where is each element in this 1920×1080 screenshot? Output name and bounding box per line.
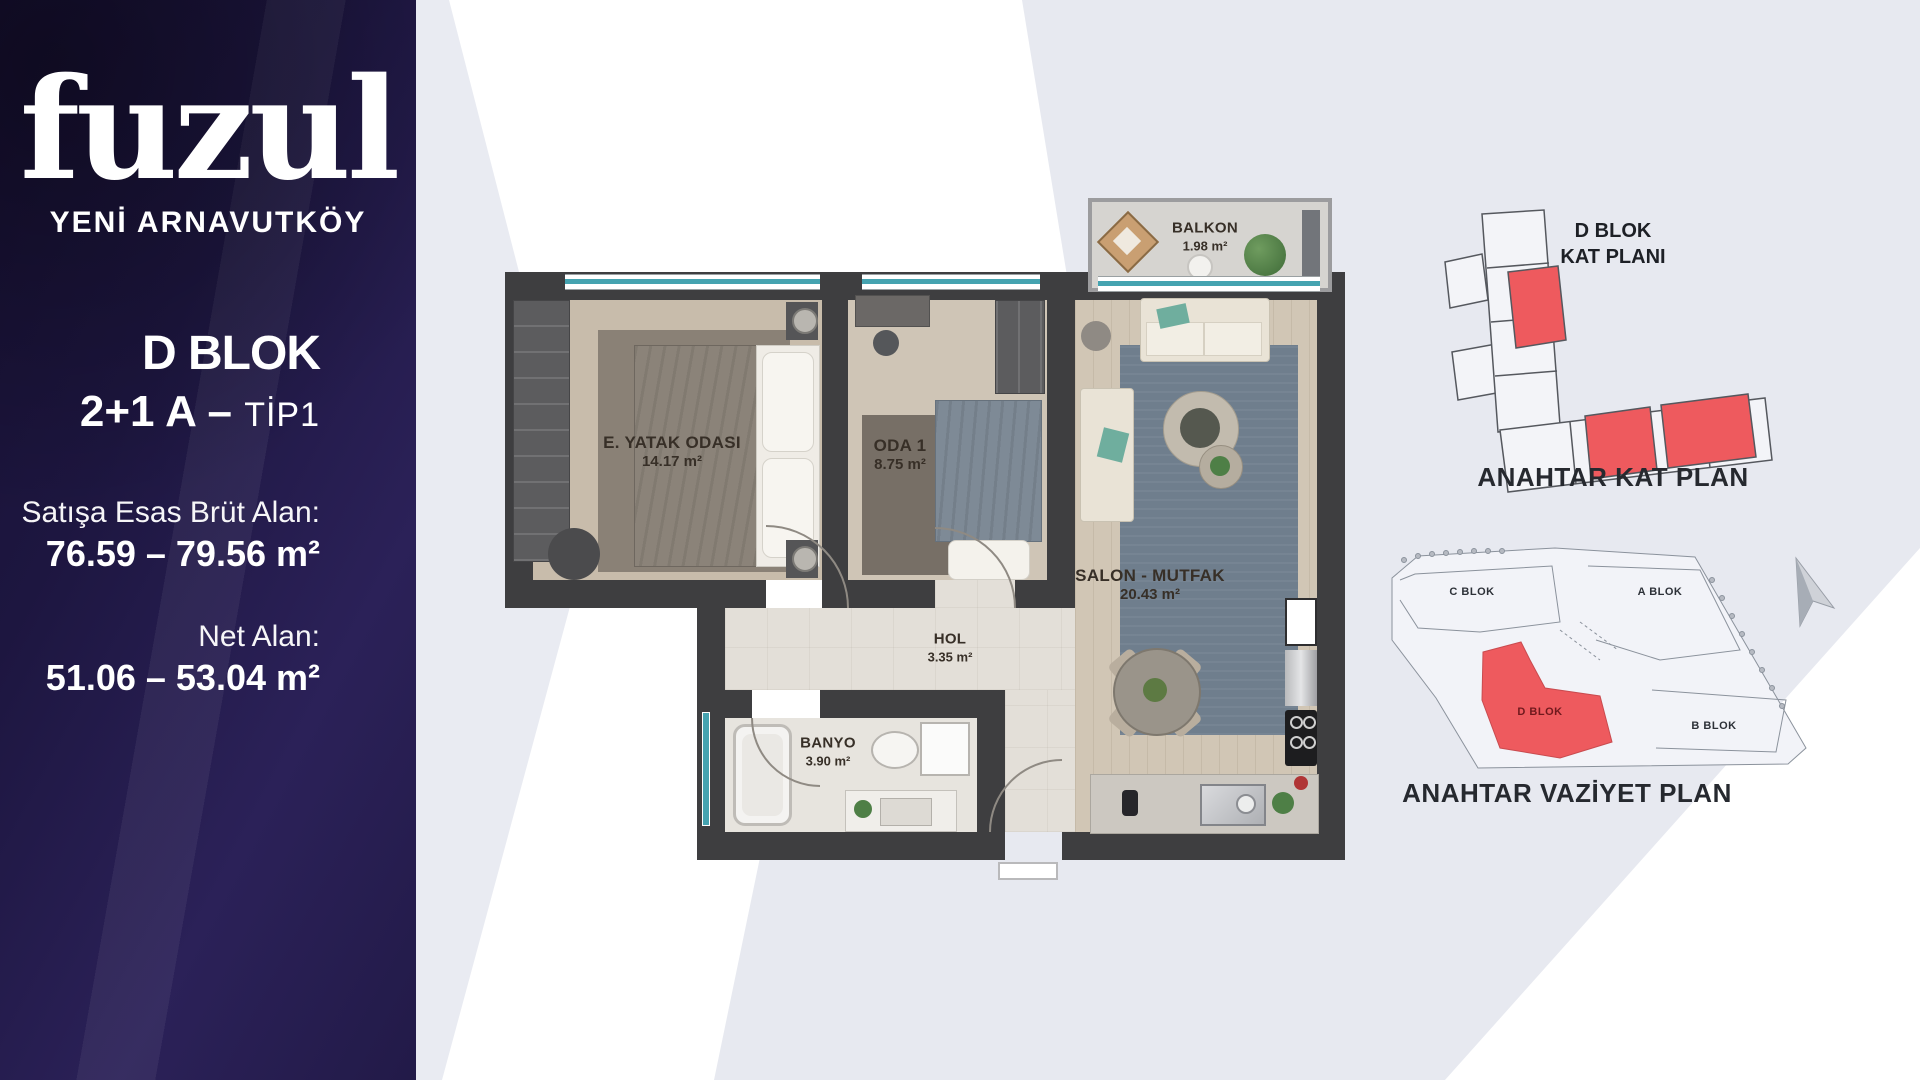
site-label-c-blok: C BLOK (1449, 586, 1494, 598)
bedroom-door-arc (766, 526, 848, 608)
room-label-hol: HOL 3.35 m² (928, 631, 973, 666)
room-label-balkon: BALKON 1.98 m² (1172, 220, 1238, 255)
entry-door-arc (990, 760, 1062, 832)
vaziyet-plan-diagram (1392, 548, 1806, 768)
room-label-yatak-odasi: E. YATAK ODASI 14.17 m² (603, 432, 741, 472)
lineart-overlay (0, 0, 1920, 1080)
room-label-oda1: ODA 1 8.75 m² (874, 435, 927, 475)
kat-plan-caption: ANAHTAR KAT PLAN (1477, 462, 1748, 493)
oda1-door-arc (935, 528, 1015, 608)
site-label-a-blok: A BLOK (1638, 586, 1683, 598)
site-label-d-blok: D BLOK (1517, 706, 1562, 718)
kat-plan-title: D BLOK KAT PLANI (1560, 218, 1665, 270)
door-arcs (752, 526, 1062, 832)
north-arrow-icon (1796, 558, 1834, 626)
room-label-banyo: BANYO 3.90 m² (800, 735, 856, 770)
poster-canvas: fuzul YENİ ARNAVUTKÖY D BLOK 2+1 A – TİP… (0, 0, 1920, 1080)
vaziyet-plan-caption: ANAHTAR VAZİYET PLAN (1402, 778, 1732, 809)
site-label-b-blok: B BLOK (1691, 720, 1736, 732)
room-label-salon-mutfak: SALON - MUTFAK 20.43 m² (1075, 565, 1225, 605)
